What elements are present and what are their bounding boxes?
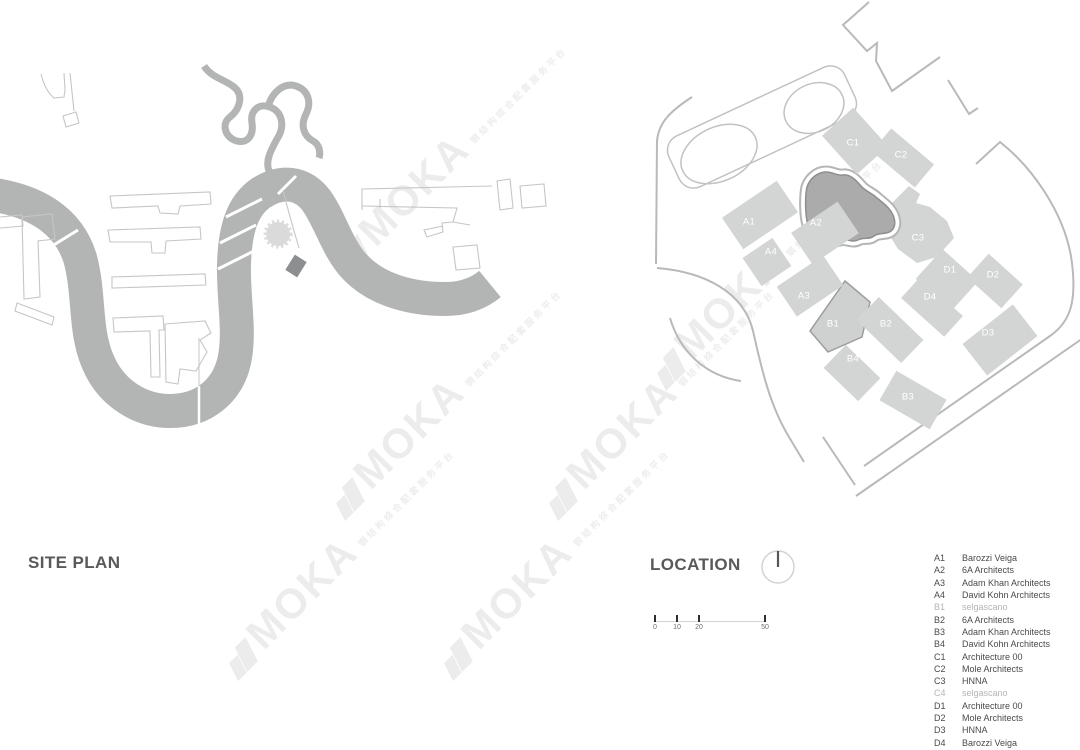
legend-code: B1 — [934, 602, 962, 612]
block-label-a2: A2 — [810, 218, 822, 229]
legend-row-b3: B3Adam Khan Architects — [934, 626, 1051, 638]
scale-tick — [654, 615, 656, 622]
legend-code: C4 — [934, 688, 962, 698]
location-drawing — [620, 0, 1080, 540]
legend-row-b4: B4David Kohn Architects — [934, 638, 1051, 650]
dome-icon — [266, 222, 290, 246]
legend-code: B4 — [934, 639, 962, 649]
legend-row-d1: D1Architecture 00 — [934, 700, 1051, 712]
block-label-b1: B1 — [827, 319, 839, 330]
legend-code: A2 — [934, 565, 962, 575]
legend-code: B2 — [934, 615, 962, 625]
legend-name: Barozzi Veiga — [962, 738, 1017, 748]
legend-name: Architecture 00 — [962, 652, 1023, 662]
block-label-c1: C1 — [847, 138, 860, 149]
watermark-brand: MOKA — [242, 533, 362, 653]
legend-code: A1 — [934, 553, 962, 563]
architectural-sheet: MOKA钢结构综合配套服务平台MOKA钢结构综合配套服务平台MOKA钢结构综合配… — [0, 0, 1080, 750]
block-label-d1: D1 — [944, 265, 957, 276]
site-plan-map — [0, 0, 560, 540]
legend-name: Architecture 00 — [962, 701, 1023, 711]
roads — [656, 2, 1080, 496]
legend-row-a3: A3Adam Khan Architects — [934, 577, 1051, 589]
block-label-d2: D2 — [987, 270, 1000, 281]
legend-code: D2 — [934, 713, 962, 723]
scale-tick — [676, 615, 678, 622]
block-label-a4: A4 — [765, 247, 777, 258]
block-label-c2: C2 — [895, 150, 908, 161]
legend-name: Mole Architects — [962, 664, 1023, 674]
legend-row-b2: B26A Architects — [934, 613, 1051, 625]
site-marker — [285, 255, 306, 278]
location-map: A1A2A3A4B1B2B3B4C1C2C3D1D2D3D4 — [620, 0, 1080, 540]
site-plan-drawing — [0, 0, 560, 540]
watermark-brand: MOKA — [457, 533, 577, 653]
legend-code: C3 — [934, 676, 962, 686]
legend-row-a4: A4David Kohn Architects — [934, 589, 1051, 601]
legend-row-a2: A26A Architects — [934, 564, 1051, 576]
site-plan-title: SITE PLAN — [28, 553, 120, 573]
block-label-a1: A1 — [743, 217, 755, 228]
river-thames — [0, 185, 490, 411]
legend-code: A3 — [934, 578, 962, 588]
legend-name: selgascano — [962, 602, 1008, 612]
legend-code: B3 — [934, 627, 962, 637]
legend-row-c1: C1Architecture 00 — [934, 650, 1051, 662]
scale-bar-line — [654, 621, 764, 622]
legend-name: Adam Khan Architects — [962, 627, 1051, 637]
block-label-c3: C3 — [912, 233, 925, 244]
legend-name: Barozzi Veiga — [962, 553, 1017, 563]
scale-tick-label: 50 — [761, 624, 769, 631]
legend-code: A4 — [934, 590, 962, 600]
block-label-b2: B2 — [880, 319, 892, 330]
legend-name: HNNA — [962, 676, 988, 686]
legend: A1Barozzi VeigaA26A ArchitectsA3Adam Kha… — [934, 552, 1051, 749]
legend-name: selgascano — [962, 688, 1008, 698]
scale-tick-label: 10 — [673, 624, 681, 631]
legend-row-d2: D2Mole Architects — [934, 712, 1051, 724]
moka-logo-icon — [222, 640, 261, 679]
legend-code: C2 — [934, 664, 962, 674]
location-title: LOCATION — [650, 555, 741, 575]
legend-row-d3: D3HNNA — [934, 724, 1051, 736]
legend-row-c2: C2Mole Architects — [934, 663, 1051, 675]
block-label-b4: B4 — [847, 354, 859, 365]
scale-bar: 0102050 — [650, 610, 772, 636]
legend-name: 6A Architects — [962, 565, 1014, 575]
legend-name: HNNA — [962, 725, 988, 735]
block-label-b3: B3 — [902, 392, 914, 403]
block-label-d3: D3 — [982, 328, 995, 339]
scale-tick-label: 20 — [695, 624, 703, 631]
legend-name: 6A Architects — [962, 615, 1014, 625]
legend-name: Adam Khan Architects — [962, 578, 1051, 588]
moka-logo-icon — [437, 640, 476, 679]
north-indicator-icon — [758, 548, 798, 588]
legend-row-a1: A1Barozzi Veiga — [934, 552, 1051, 564]
legend-name: David Kohn Architects — [962, 639, 1050, 649]
scale-tick-label: 0 — [653, 624, 657, 631]
legend-row-b1: B1selgascano — [934, 601, 1051, 613]
legend-name: Mole Architects — [962, 713, 1023, 723]
legend-name: David Kohn Architects — [962, 590, 1050, 600]
block-label-d4: D4 — [924, 292, 937, 303]
legend-row-c3: C3HNNA — [934, 675, 1051, 687]
legend-code: D3 — [934, 725, 962, 735]
legend-row-d4: D4Barozzi Veiga — [934, 736, 1051, 748]
legend-row-c4: C4selgascano — [934, 687, 1051, 699]
legend-code: C1 — [934, 652, 962, 662]
legend-code: D1 — [934, 701, 962, 711]
scale-tick — [698, 615, 700, 622]
legend-code: D4 — [934, 738, 962, 748]
scale-tick — [764, 615, 766, 622]
block-label-a3: A3 — [798, 291, 810, 302]
